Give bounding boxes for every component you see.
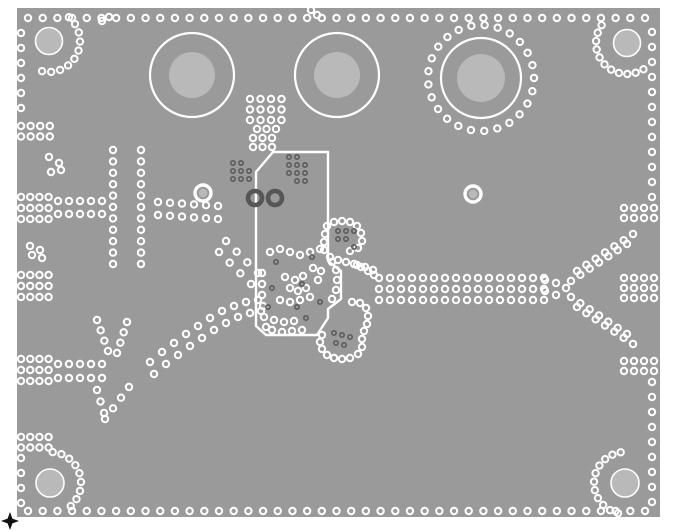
mounting-hole <box>36 469 64 497</box>
connector-center-pad <box>314 52 360 98</box>
round-pad-center <box>199 189 208 198</box>
connector-center-pad <box>169 52 215 98</box>
mounting-hole <box>36 28 63 55</box>
mounting-hole <box>614 30 641 57</box>
mounting-hole <box>611 469 639 497</box>
connector-center-pad <box>457 54 505 102</box>
pcb-layout-view <box>0 0 673 532</box>
pcb-layout-svg <box>0 0 673 532</box>
round-pad-center <box>469 190 478 199</box>
